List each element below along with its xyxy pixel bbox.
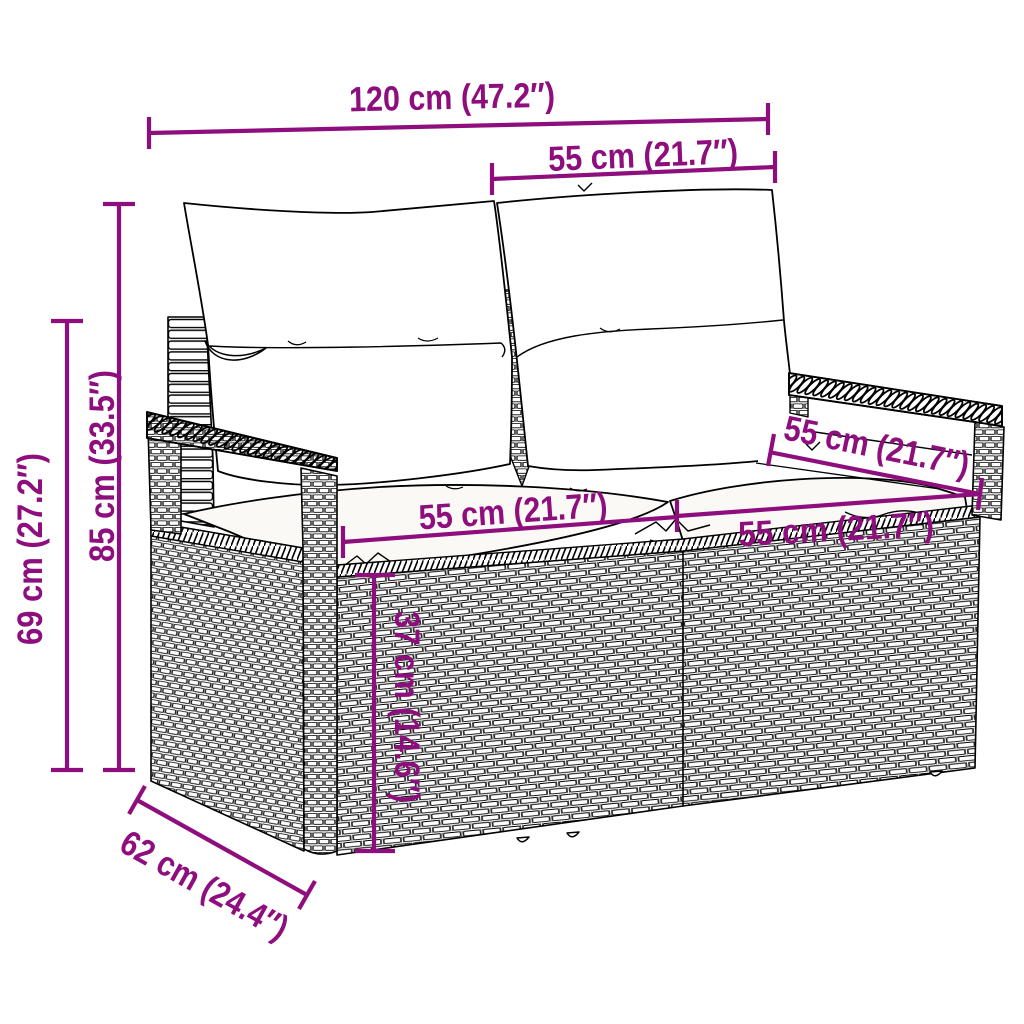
- svg-text:85 cm (33.5″): 85 cm (33.5″): [83, 370, 122, 562]
- svg-text:55 cm (21.7″): 55 cm (21.7″): [547, 132, 738, 179]
- svg-text:37 cm (14.6″): 37 cm (14.6″): [387, 611, 426, 803]
- svg-text:69 cm (27.2″): 69 cm (27.2″): [11, 453, 50, 645]
- svg-text:120 cm (47.2″): 120 cm (47.2″): [349, 76, 556, 120]
